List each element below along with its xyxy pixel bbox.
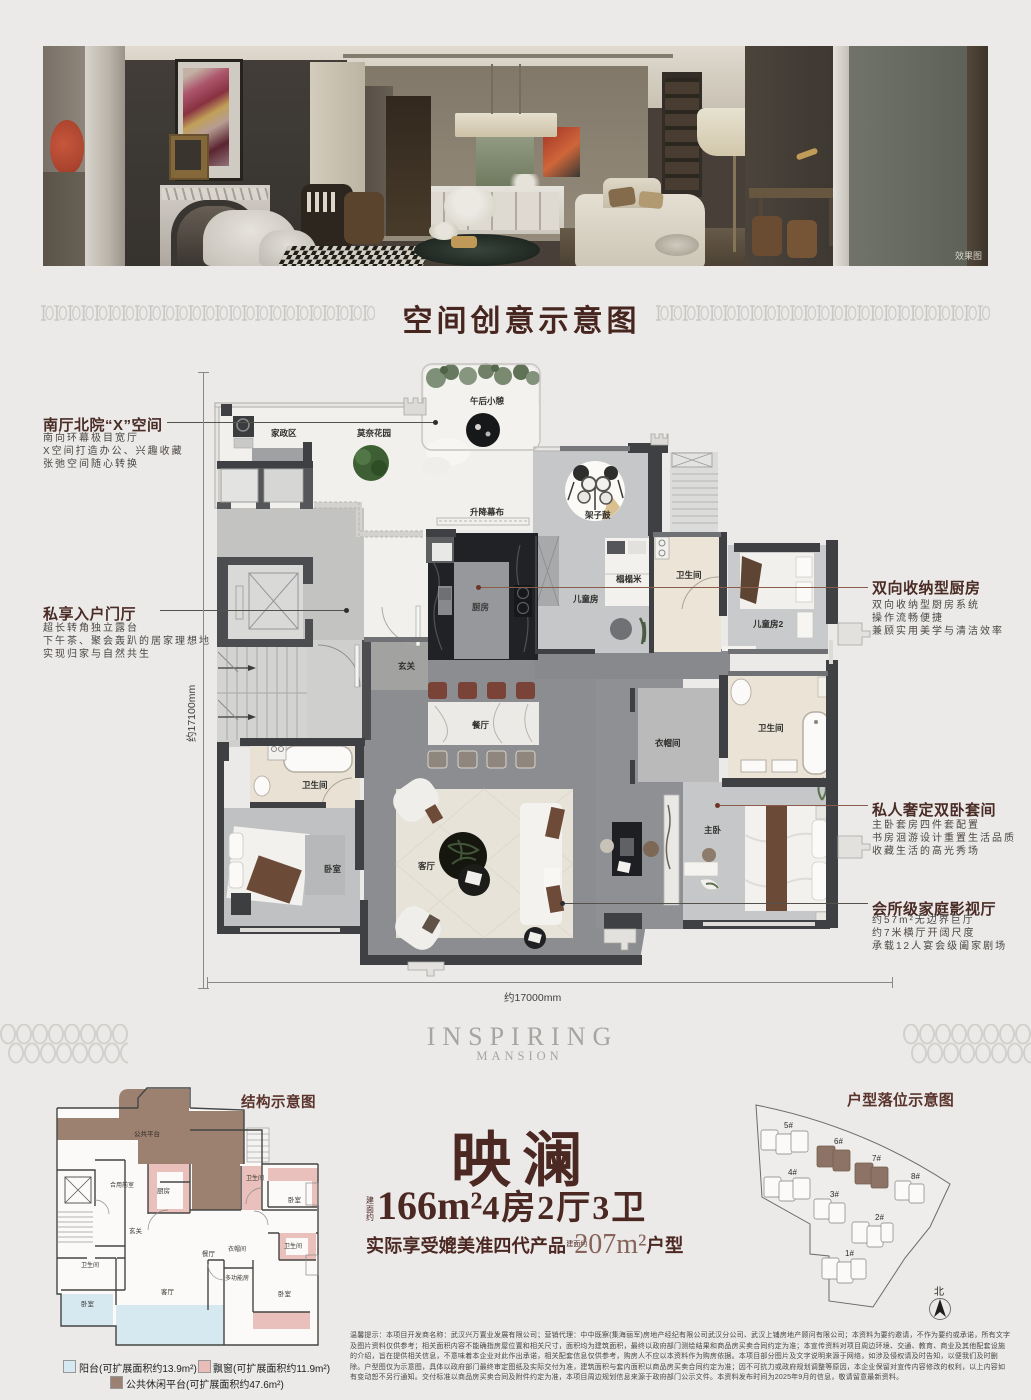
- svg-text:主卧: 主卧: [704, 825, 722, 835]
- svg-text:3#: 3#: [830, 1190, 839, 1199]
- svg-text:卫生间: 卫生间: [284, 1242, 302, 1250]
- svg-text:卫生间: 卫生间: [302, 780, 328, 790]
- svg-text:2#: 2#: [875, 1213, 884, 1222]
- svg-text:客厅: 客厅: [417, 861, 436, 871]
- svg-text:午后小憩: 午后小憩: [470, 396, 505, 406]
- svg-text:榻榻米: 榻榻米: [616, 574, 642, 584]
- svg-text:玄关: 玄关: [129, 1226, 143, 1235]
- svg-text:厨房: 厨房: [472, 602, 489, 612]
- svg-text:儿童房2: 儿童房2: [752, 619, 784, 629]
- svg-text:卫生间: 卫生间: [758, 723, 784, 733]
- svg-text:卧室: 卧室: [278, 1289, 292, 1298]
- svg-text:公共平台: 公共平台: [134, 1129, 160, 1138]
- svg-text:客厅: 客厅: [161, 1287, 175, 1296]
- svg-text:8#: 8#: [911, 1172, 920, 1181]
- svg-text:1#: 1#: [845, 1249, 854, 1258]
- svg-text:5#: 5#: [784, 1121, 793, 1130]
- svg-text:6#: 6#: [834, 1137, 843, 1146]
- svg-text:餐厅: 餐厅: [471, 720, 490, 730]
- svg-text:多功能房: 多功能房: [225, 1274, 249, 1282]
- svg-text:玄关: 玄关: [398, 661, 416, 671]
- svg-text:卫生间: 卫生间: [81, 1261, 99, 1269]
- svg-text:卫生间: 卫生间: [676, 570, 702, 580]
- svg-text:4#: 4#: [788, 1168, 797, 1177]
- svg-text:家政区: 家政区: [271, 428, 297, 438]
- svg-text:北: 北: [934, 1286, 944, 1298]
- svg-text:7#: 7#: [872, 1154, 881, 1163]
- svg-text:卧室: 卧室: [81, 1299, 95, 1308]
- svg-text:卧室: 卧室: [324, 864, 342, 874]
- svg-text:衣帽间: 衣帽间: [655, 738, 681, 748]
- svg-text:儿童房: 儿童房: [572, 594, 599, 604]
- svg-text:厨房: 厨房: [157, 1186, 170, 1195]
- svg-text:卧室: 卧室: [288, 1195, 302, 1204]
- svg-text:衣帽间: 衣帽间: [228, 1245, 246, 1253]
- svg-text:升降幕布: 升降幕布: [470, 507, 505, 517]
- svg-text:架子鼓: 架子鼓: [584, 510, 611, 520]
- svg-text:餐厅: 餐厅: [202, 1249, 216, 1258]
- svg-text:合用前室: 合用前室: [110, 1181, 134, 1189]
- svg-text:莫奈花园: 莫奈花园: [356, 428, 391, 438]
